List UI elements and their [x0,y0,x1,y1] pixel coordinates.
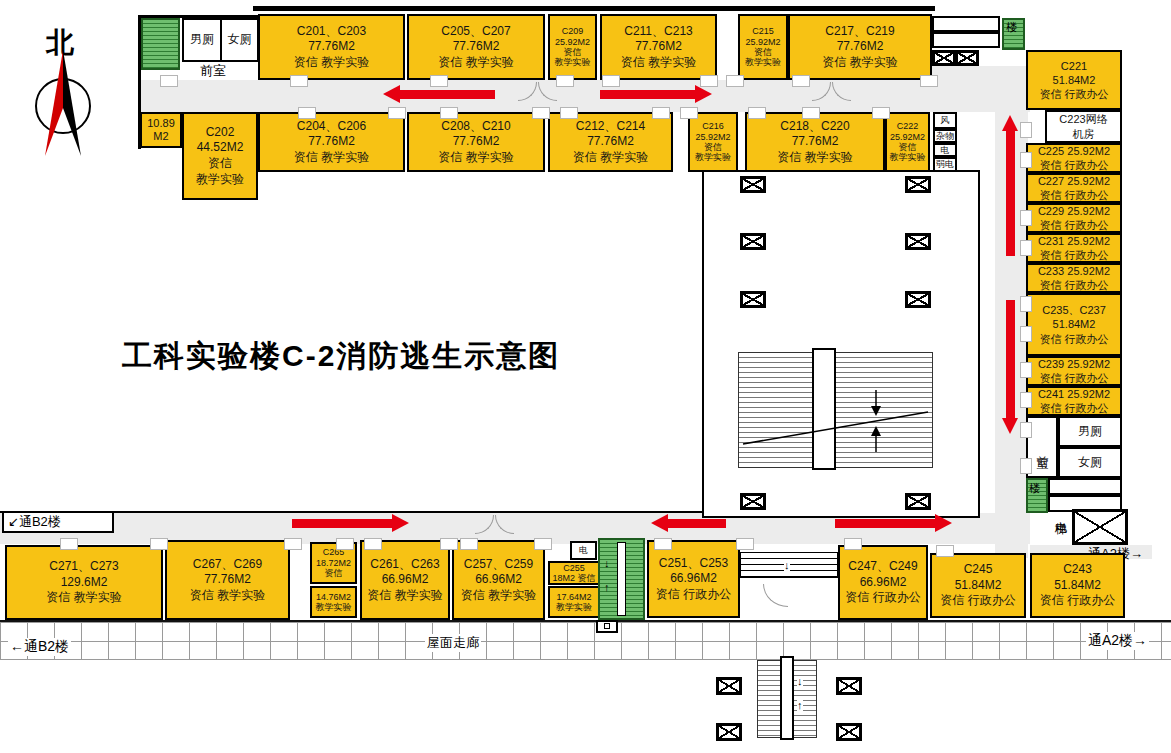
door-gap [556,75,574,87]
door-gap [284,538,302,550]
escape-arrow-right [292,519,392,528]
escape-arrow-right-head [935,514,952,532]
room-wc-men-top: 男厕 [182,18,222,62]
label-to-a2-lower: 通A2楼→ [1086,632,1149,650]
room-c239: C239 25.92M2 资信 行政办公 [1026,356,1122,386]
compass-icon [25,48,105,160]
escape-arrow-down [1006,300,1015,418]
column-marker [905,176,931,193]
central-staircase-arrows [738,352,933,468]
door-gap [336,538,354,550]
door-gap [364,538,382,550]
column-marker [740,233,766,250]
stair-flight-lower [932,32,1000,48]
escape-arrow-left-head [651,514,668,532]
door-gap [298,107,316,119]
room-c202: C202 44.52M2 资信 教学实验 [182,112,258,200]
elevator-shaft-right [1072,509,1128,545]
escape-arrow-left [668,519,726,528]
door-gap [602,75,620,87]
door-gap [60,538,78,550]
stair-flight-upper [932,16,1000,32]
room-c261-c263: C261、C263 66.96M2 资信 教学实验 [360,540,450,620]
column-marker [836,723,862,741]
room-wc-women-right: 女厕 [1058,447,1122,478]
door-gap [160,75,178,87]
room-c204-c206: C204、C206 77.76M2 资信 教学实验 [258,112,405,172]
room-c218-c220: C218、C220 77.76M2 资信 教学实验 [745,112,885,172]
bridge-down-arrow: ↓ [784,560,790,571]
door-gap [680,107,698,119]
door-gap [440,538,458,550]
door-gap [1020,152,1032,168]
door-gap [430,75,448,87]
room-c212-c214: C212、C214 77.76M2 资信 教学实验 [548,112,673,172]
door-gap [652,107,670,119]
room-c243: C243 51.84M2 资信 行政办公 [1030,553,1125,618]
label-stair-upper: 楼 [1006,20,1017,35]
column-marker [716,723,742,741]
door-gap [1020,296,1032,312]
door-gap [1020,362,1032,378]
door-arc [763,584,788,607]
wall-top [253,6,935,11]
room-c201-c203: C201、C203 77.76M2 资信 教学实验 [258,14,405,80]
room-c247-c249: C247、C249 66.96M2 资信 行政办公 [838,545,928,620]
column-marker [740,291,766,308]
stair-up-arrow: ↑ [604,582,610,593]
corridor-top [140,80,1030,112]
room-c231: C231 25.92M2 资信 行政办公 [1026,233,1122,263]
door-gap [532,107,550,119]
room-c216: C216 25.92M2 资信 教学实验 [688,112,738,172]
escape-arrow-right-head [392,514,409,532]
door-gap [654,538,672,550]
stairwell-center-divider [617,542,626,616]
door-gap [1020,392,1032,408]
room-c222: C222 25.92M2 资信 教学实验 [885,112,930,172]
door-gap [150,538,168,550]
room-c255: C255 18M2 资信 [548,561,600,585]
room-c205-c207: C205、C207 77.76M2 资信 教学实验 [407,14,545,80]
elevator-shaft-top [932,50,956,66]
escape-arrow-right [600,90,695,99]
page-title: 工科实验楼C-2消防逃生示意图 [122,336,560,377]
room-10-89m2: 10.89 M2 [140,112,182,148]
label-to-b2-lower: ←通B2楼 [8,638,71,656]
room-c229: C229 25.92M2 资信 行政办公 [1026,203,1122,233]
escape-arrow-up-head [1002,115,1018,131]
room-c257-c259: C257、C259 66.96M2 资信 教学实验 [452,540,545,620]
room-c251-c253: C251、C253 66.96M2 资信 行政办公 [647,540,740,618]
column-marker [905,291,931,308]
door-gap [1020,240,1032,256]
room-c223-network: C223网络 机房 [1045,110,1122,143]
door-gap [290,75,308,87]
door-gap [1020,326,1032,342]
room-c227: C227 25.92M2 资信 行政办公 [1026,173,1122,203]
room-c217-c219: C217、C219 77.76M2 资信 教学实验 [788,14,932,80]
stair-down-arrow: ↓ [604,558,610,569]
escape-arrow-left-head [383,85,400,103]
elevator-shaft-top [955,50,979,66]
door-gap [736,538,754,550]
room-14-76m2: 14.76M2 教学实验 [310,586,357,618]
door-gap [560,107,578,119]
room-c208-c210: C208、C210 77.76M2 资信 教学实验 [407,112,545,172]
room-c271-c273: C271、C273 129.6M2 资信 教学实验 [5,545,163,620]
column-marker [836,677,862,695]
floor-plan-canvas: 男厕 女厕 前室 C201、C203 77.76M2 资信 教学实验 C205、… [0,0,1171,753]
room-util-ruodian: 弱电 [933,157,957,172]
column-marker [716,677,742,695]
room-c267-c269: C267、C269 77.76M2 资信 教学实验 [165,540,290,620]
room-c221: C221 51.84M2 资信 行政办公 [1026,50,1122,110]
column-marker [905,493,931,510]
escape-arrow-down-head [1002,418,1018,434]
stair-exit-box-inner [604,623,610,629]
room-util-zawu: 杂物 [933,129,957,143]
escape-arrow-right [835,519,935,528]
stair-down-arrow: ↓ [797,676,803,687]
column-marker [740,493,766,510]
label-roof-corridor: 屋面走廊 [425,634,481,652]
room-c211-c213: C211、C213 77.76M2 资信 教学实验 [600,14,717,80]
door-gap [460,538,478,550]
door-gap [748,107,766,119]
door-gap [1020,422,1032,438]
room-17-64m2: 17.64M2 教学实验 [548,586,600,618]
door-gap [802,107,820,119]
room-c235-c237: C235、C237 51.84M2 资信 行政办公 [1026,293,1122,356]
door-gap [844,538,862,550]
stairwell-top-left [141,18,180,70]
room-c241: C241 25.92M2 资信 行政办公 [1026,386,1122,416]
door-gap [920,75,938,87]
room-elec-bottom: 电 [570,541,597,560]
column-marker [740,176,766,193]
escape-arrow-left [400,90,495,99]
room-wc-women-top: 女厕 [220,18,259,62]
room-util-feng: 风 [933,112,957,129]
escape-arrow-up [1006,131,1015,256]
room-c215: C215 25.92M2 资信 教学实验 [738,14,788,80]
room-c209: C209 25.92M2 资信 教学实验 [548,14,597,80]
door-gap [936,545,954,557]
column-marker [905,233,931,250]
label-stair-lower: 楼 [1029,481,1040,496]
door-gap [534,538,552,550]
door-gap [1020,122,1032,138]
room-c233: C233 25.92M2 资信 行政办公 [1026,263,1122,293]
door-gap [1020,210,1032,226]
door-gap [388,107,406,119]
label-elevator: 电梯 [1052,512,1069,514]
room-c245: C245 51.84M2 资信 行政办公 [930,553,1026,618]
room-c225: C225 25.92M2 资信 行政办公 [1026,143,1122,173]
escape-arrow-right-head [695,85,712,103]
door-gap [726,75,744,87]
label-front-room-top: 前室 [200,62,226,80]
door-gap [1020,458,1032,474]
stair-up-arrow: ↑ [797,700,803,711]
room-wc-men-right: 男厕 [1058,416,1122,447]
door-gap [440,107,458,119]
elevator-lobby-upper [1048,478,1122,495]
door-gap [792,75,810,87]
roof-deck [0,620,1171,660]
exterior-staircase-divider [780,656,794,740]
room-util-dian: 电 [933,143,957,157]
door-gap [872,107,890,119]
label-to-b2-upper: ↙通B2楼 [2,511,114,533]
